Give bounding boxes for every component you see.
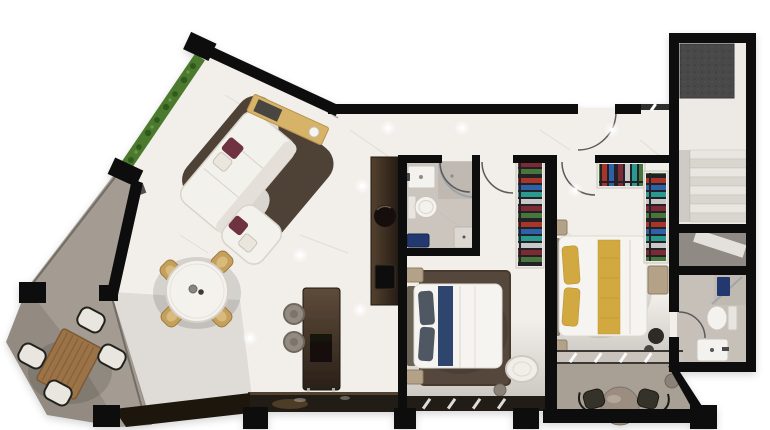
navy-throw — [438, 286, 453, 366]
wall-bath-east — [472, 155, 480, 256]
toilet — [707, 306, 727, 330]
wall-bedrooms-divider — [545, 155, 557, 412]
nightstand — [406, 268, 423, 282]
apartment — [6, 32, 756, 429]
navy-mat — [717, 277, 730, 296]
bed-runner — [598, 240, 620, 334]
navy-bench — [407, 234, 429, 247]
cooktop — [375, 265, 395, 289]
wall-top-west — [328, 104, 578, 114]
floor-plan-render — [0, 0, 770, 430]
shower-drain — [450, 174, 453, 177]
wall-master-balcony-south — [543, 409, 696, 423]
counter-edge — [248, 392, 400, 395]
master-wardrobe-side-clothes — [646, 173, 666, 261]
wall-ensuite-south — [669, 362, 756, 372]
post-bedroom2 — [394, 408, 416, 429]
spotlight — [242, 330, 258, 346]
post-wall-end — [99, 285, 118, 301]
wall-bath-north — [398, 155, 442, 163]
stair-side-shadow — [679, 150, 690, 222]
post-kitchen — [243, 407, 268, 429]
spotlight — [454, 120, 470, 136]
table-decor — [189, 285, 197, 293]
dresser — [648, 266, 668, 294]
dark-feature-wall — [680, 44, 734, 98]
sliding-door-track — [556, 362, 683, 364]
counter-warm-glow — [272, 399, 308, 409]
island-panel — [310, 334, 332, 362]
spotlight — [567, 182, 583, 198]
bedroom2-wardrobe-clothes — [518, 158, 542, 266]
wall-bedroom2-north — [513, 155, 547, 163]
post-balcony-corner — [690, 405, 717, 429]
counter-shine — [340, 396, 350, 400]
table-highlight — [607, 395, 621, 403]
wall-master-north — [595, 155, 671, 163]
spotlight — [604, 122, 620, 138]
wall-stair-closet — [669, 224, 750, 233]
wall-kitchen-bedroom — [398, 155, 407, 410]
pillow — [418, 290, 435, 325]
wall-stair-top — [669, 33, 756, 43]
master-wardrobe-top-clothes — [599, 164, 643, 186]
shower-floor — [438, 162, 473, 199]
stool-center — [290, 338, 298, 346]
spotlight — [352, 302, 368, 318]
spotlight — [354, 178, 370, 194]
box-knob — [463, 236, 466, 239]
side-table — [494, 384, 506, 396]
pillow — [418, 327, 435, 362]
sliding-door-track — [556, 350, 683, 352]
yellow-pillow — [562, 245, 581, 284]
toilet — [415, 197, 437, 218]
dark-pouf — [648, 328, 664, 344]
post-divider — [513, 408, 539, 429]
wall-bath-south — [398, 248, 480, 256]
wall-ensuite-north — [669, 266, 756, 275]
round-basin — [374, 205, 396, 227]
nightstand — [406, 370, 423, 384]
wall-top-east — [615, 104, 641, 114]
post-terrace-west — [19, 282, 46, 303]
floor-plan-canvas — [0, 0, 770, 430]
lounge-chair — [506, 356, 538, 382]
table-decor — [198, 289, 204, 295]
post-terrace-south — [93, 405, 120, 427]
stair-steps — [690, 150, 746, 222]
basin-drain — [710, 348, 714, 352]
toilet-tank — [728, 306, 737, 330]
spotlight — [380, 120, 396, 136]
spotlight — [292, 247, 308, 263]
stool-center — [290, 310, 298, 318]
wall-east-outer — [746, 33, 756, 371]
yellow-pillow — [562, 287, 581, 326]
basin-drain — [419, 175, 423, 179]
faucet — [722, 347, 729, 351]
